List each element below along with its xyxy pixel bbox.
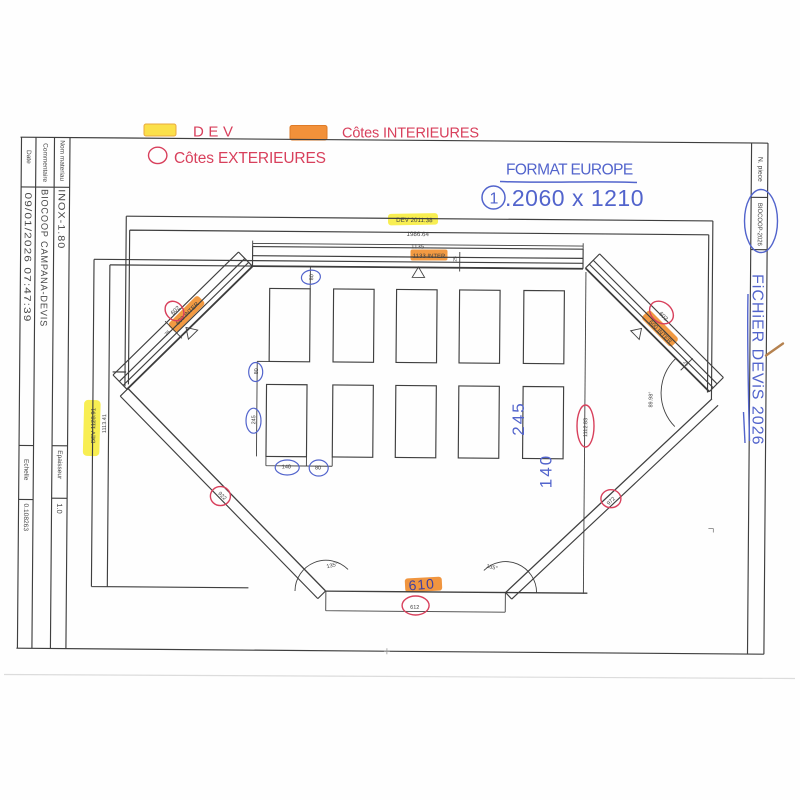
svg-text:Côtes EXTERIEURES: Côtes EXTERIEURES — [174, 150, 326, 167]
svg-text:80: 80 — [309, 274, 315, 280]
svg-text:80: 80 — [315, 465, 321, 471]
svg-text:612: 612 — [410, 605, 419, 611]
svg-text:N. piece: N. piece — [756, 157, 763, 182]
svg-text:610: 610 — [408, 575, 436, 593]
svg-text:Nom materiau: Nom materiau — [58, 140, 65, 181]
svg-text:FORMAT EUROPE: FORMAT EUROPE — [506, 162, 634, 179]
svg-text:25: 25 — [453, 256, 459, 262]
svg-text:Epaisseur: Epaisseur — [56, 450, 63, 480]
svg-text:1986.64: 1986.64 — [407, 231, 430, 238]
svg-text:Date: Date — [25, 150, 32, 164]
svg-text:1: 1 — [490, 191, 499, 208]
svg-text:89.98°: 89.98° — [648, 392, 654, 408]
svg-text:Echelle: Echelle — [22, 459, 29, 481]
svg-text:DEV: DEV — [193, 124, 236, 141]
svg-text:FiCHiER DEViS 2026: FiCHiER DEViS 2026 — [749, 274, 766, 446]
svg-text:0.108263: 0.108263 — [22, 503, 29, 531]
svg-text:DEV 2011.38: DEV 2011.38 — [396, 217, 433, 224]
svg-text:BIOCOOP CAMPANA-DEVIS: BIOCOOP CAMPANA-DEVIS — [37, 189, 49, 327]
svg-text:Commentaire: Commentaire — [41, 143, 48, 182]
svg-text:BIOCOOP-2026: BIOCOOP-2026 — [756, 203, 763, 246]
svg-text:80: 80 — [254, 368, 260, 374]
svg-text:140: 140 — [537, 454, 556, 488]
svg-text:DEV 1128.91: DEV 1128.91 — [91, 407, 97, 443]
svg-text:Côtes INTERIEURES: Côtes INTERIEURES — [342, 126, 479, 142]
svg-text:1113.41: 1113.41 — [102, 414, 108, 433]
svg-text:1135: 1135 — [411, 244, 425, 250]
svg-text:.2060 x 1210: .2060 x 1210 — [505, 185, 644, 211]
svg-text:245: 245 — [509, 401, 528, 435]
svg-text:1133 INTER: 1133 INTER — [413, 254, 446, 260]
svg-text:09/01/2026 07:47:39: 09/01/2026 07:47:39 — [21, 192, 33, 322]
svg-text:INOX-1.80: INOX-1.80 — [55, 189, 66, 249]
svg-text:1.0: 1.0 — [55, 503, 64, 514]
svg-text:140: 140 — [282, 464, 291, 470]
svg-text:245: 245 — [251, 415, 257, 424]
svg-text:1112.83: 1112.83 — [583, 418, 589, 437]
